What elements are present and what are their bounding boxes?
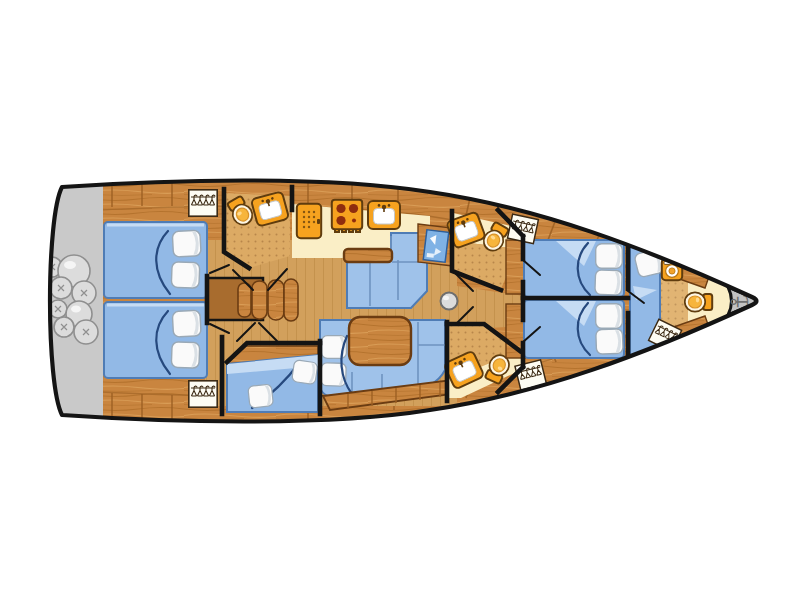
yacht-floorplan-canvas: ⚓ [0, 0, 800, 600]
pillow [595, 270, 622, 296]
sink-icon [368, 201, 400, 229]
pillow [596, 244, 623, 269]
pillow [596, 329, 623, 355]
companionway-steps [207, 278, 298, 321]
wardrobe-hangers-icon [189, 190, 217, 216]
pillow [172, 310, 201, 337]
pillow [248, 384, 274, 408]
stove-icon [332, 200, 362, 232]
yacht-floorplan: ⚓ [0, 0, 800, 600]
pillow [171, 342, 199, 368]
pillow [172, 230, 201, 257]
dinette-table [344, 249, 392, 262]
wardrobe-hangers-icon [189, 381, 217, 407]
chart-table-icon [423, 230, 448, 262]
mast-icon [441, 293, 458, 310]
pillow [171, 262, 199, 288]
nav-station [418, 224, 452, 266]
aft-port-cabin [104, 222, 207, 298]
fridge-icon [297, 204, 321, 238]
salon-table [349, 317, 411, 365]
toilet-icon [685, 292, 712, 311]
aft-starboard-cabin [104, 302, 207, 378]
salon-settee [320, 317, 452, 410]
pillow [596, 304, 623, 329]
bunk-cabin [227, 346, 318, 412]
pillow [292, 360, 318, 385]
